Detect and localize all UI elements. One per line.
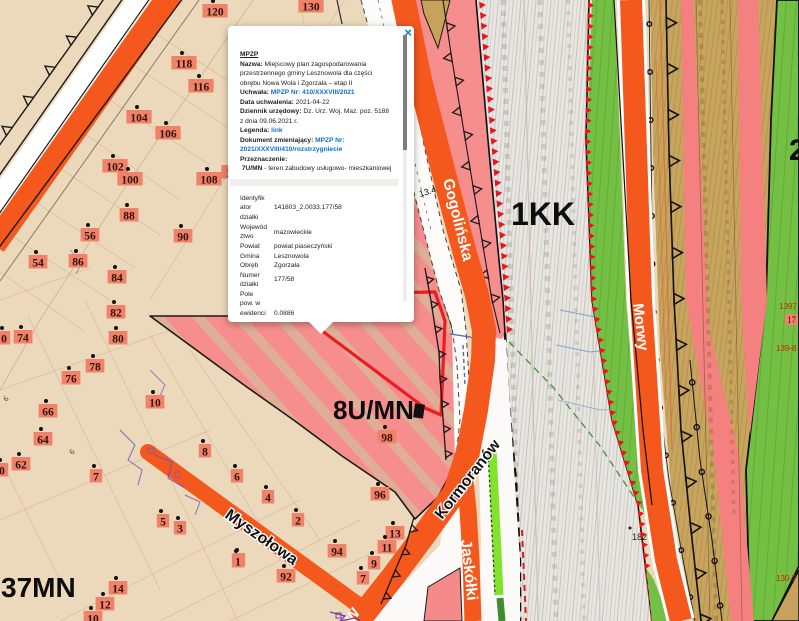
svg-text:64: 64 (37, 435, 49, 447)
svg-text:94: 94 (331, 547, 343, 559)
svg-text:4: 4 (265, 493, 271, 505)
svg-text:0: 0 (0, 466, 5, 478)
svg-text:108: 108 (200, 175, 218, 187)
svg-text:139-8: 139-8 (776, 344, 797, 353)
svg-text:3: 3 (177, 524, 183, 536)
svg-text:1397: 1397 (779, 302, 797, 311)
svg-text:82: 82 (110, 308, 122, 320)
svg-text:8U/MN: 8U/MN (333, 395, 414, 425)
svg-text:10: 10 (149, 398, 161, 410)
svg-text:7: 7 (93, 472, 99, 484)
svg-text:92: 92 (280, 572, 292, 584)
svg-text:100: 100 (121, 175, 139, 187)
svg-text:9: 9 (371, 559, 377, 571)
svg-text:7: 7 (360, 574, 366, 586)
svg-text:12: 12 (99, 600, 111, 612)
svg-text:8: 8 (202, 447, 208, 459)
svg-text:74: 74 (17, 333, 29, 345)
svg-text:84: 84 (111, 273, 123, 285)
svg-text:13: 13 (389, 529, 401, 541)
svg-text:1KK: 1KK (511, 196, 575, 232)
svg-text:66: 66 (42, 407, 54, 419)
svg-text:10: 10 (87, 614, 99, 621)
svg-text:76: 76 (65, 374, 77, 386)
svg-text:88: 88 (123, 211, 135, 223)
svg-text:2: 2 (789, 134, 799, 167)
svg-text:14: 14 (112, 584, 124, 596)
svg-text:86: 86 (72, 257, 84, 269)
svg-text:96: 96 (374, 490, 386, 502)
svg-text:2: 2 (295, 516, 301, 528)
svg-text:6: 6 (234, 472, 240, 484)
svg-text:90: 90 (177, 232, 189, 244)
svg-text:106: 106 (159, 129, 177, 141)
svg-text:80: 80 (112, 334, 124, 346)
svg-text:120: 120 (206, 7, 224, 19)
svg-text:116: 116 (193, 82, 210, 94)
svg-text:104: 104 (130, 113, 148, 125)
svg-text:56: 56 (84, 231, 96, 243)
svg-text:0: 0 (1, 334, 7, 346)
svg-text:102: 102 (106, 162, 124, 174)
svg-text:54: 54 (32, 258, 44, 270)
svg-text:5: 5 (160, 517, 166, 529)
svg-text:78: 78 (89, 362, 101, 374)
svg-text:1: 1 (235, 557, 241, 569)
svg-text:118: 118 (176, 59, 193, 71)
svg-text:98: 98 (381, 433, 393, 445)
svg-text:11: 11 (382, 543, 393, 555)
svg-text:130-7: 130-7 (776, 574, 797, 583)
svg-text:17: 17 (787, 315, 797, 325)
svg-text:62: 62 (15, 460, 27, 472)
svg-text:37MN: 37MN (1, 572, 76, 603)
